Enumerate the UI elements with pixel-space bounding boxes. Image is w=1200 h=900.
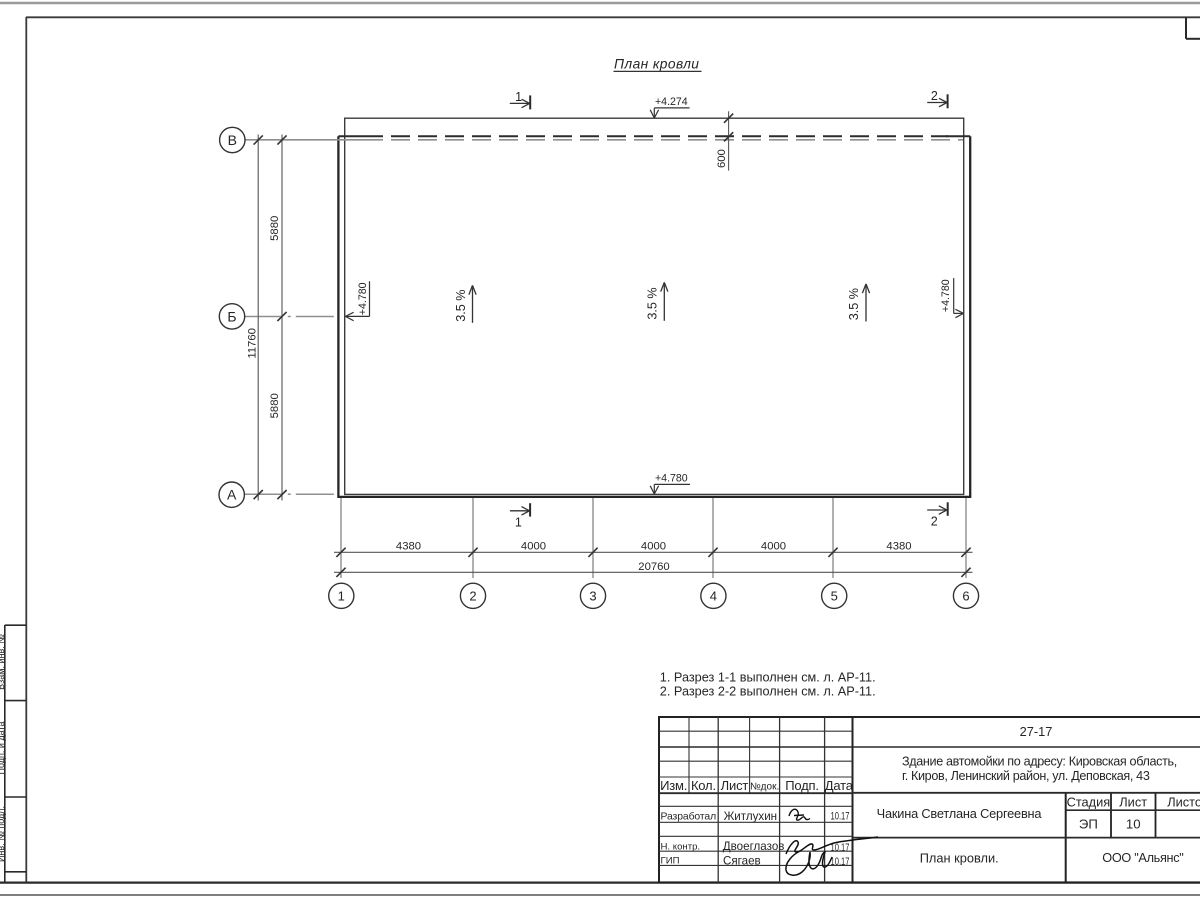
svg-text:4380: 4380 [886,541,911,553]
svg-text:Чакина Светлана Сергеевна: Чакина Светлана Сергеевна [877,806,1043,821]
svg-text:Подп. и дата: Подп. и дата [0,721,6,774]
svg-text:Кол.: Кол. [691,778,716,793]
svg-text:Лист: Лист [1119,795,1147,810]
svg-text:4: 4 [710,589,717,604]
svg-text:ЭП: ЭП [1079,816,1098,831]
svg-text:600: 600 [716,149,728,168]
svg-text:4000: 4000 [641,541,666,553]
svg-text:5880: 5880 [269,216,281,241]
svg-text:+4.780: +4.780 [357,282,369,315]
svg-text:5: 5 [831,589,838,604]
svg-text:1: 1 [515,515,522,529]
svg-text:3.5 %: 3.5 % [454,290,468,322]
svg-text:2. Разрез 2-2 выполнен см. л.: 2. Разрез 2-2 выполнен см. л. АР-11. [660,685,876,699]
svg-text:г. Киров, Ленинский район, ул.: г. Киров, Ленинский район, ул. Деповская… [902,769,1150,783]
svg-text:5880: 5880 [269,393,281,418]
svg-text:10.17: 10.17 [831,856,850,868]
svg-text:Житлухин: Житлухин [724,810,777,823]
svg-text:ГИП: ГИП [661,856,680,867]
svg-text:2: 2 [931,89,938,103]
svg-text:Сягаев: Сягаев [723,854,761,867]
svg-text:6: 6 [962,589,969,604]
svg-text:Двоеглазов: Двоеглазов [723,840,785,853]
svg-text:1: 1 [515,90,522,104]
svg-text:Н. контр.: Н. контр. [661,841,701,852]
svg-text:10.17: 10.17 [831,811,850,823]
svg-text:Здание автомойки по адресу: Ки: Здание автомойки по адресу: Кировская об… [902,754,1177,768]
svg-text:20760: 20760 [638,561,669,573]
svg-text:4000: 4000 [761,541,786,553]
svg-text:+4.780: +4.780 [655,472,688,484]
svg-text:4000: 4000 [521,541,546,553]
svg-text:3.5 %: 3.5 % [646,287,660,319]
svg-text:3: 3 [589,589,596,604]
svg-text:Листов: Листов [1167,795,1200,810]
svg-text:1: 1 [338,589,345,604]
svg-text:2: 2 [469,589,476,604]
svg-text:Б: Б [227,308,236,324]
svg-text:Инв. № подл.: Инв. № подл. [0,806,6,862]
svg-text:+4.780: +4.780 [940,279,952,312]
svg-text:В: В [228,132,237,148]
svg-text:План кровли: План кровли [614,57,699,72]
svg-text:ООО "Альянс": ООО "Альянс" [1102,851,1183,865]
svg-text:11760: 11760 [246,328,258,359]
svg-text:А: А [227,487,237,503]
svg-text:10.17: 10.17 [831,842,850,854]
svg-text:Дата: Дата [825,778,854,793]
svg-text:№док.: №док. [750,781,779,792]
svg-text:Стадия: Стадия [1067,795,1111,810]
svg-text:27-17: 27-17 [1020,724,1053,739]
svg-text:План кровли.: План кровли. [920,850,999,865]
svg-text:2: 2 [931,514,938,528]
svg-text:Подп.: Подп. [785,778,819,793]
svg-text:Разработал: Разработал [661,811,717,823]
svg-text:Изм.: Изм. [660,778,687,793]
svg-text:3.5 %: 3.5 % [847,288,861,320]
svg-text:1. Разрез 1-1 выполнен см. л.: 1. Разрез 1-1 выполнен см. л. АР-11. [660,671,876,685]
svg-text:+4.274: +4.274 [655,96,688,108]
svg-text:Лист: Лист [721,778,749,793]
svg-text:4380: 4380 [396,541,421,553]
svg-text:10: 10 [1126,816,1141,831]
svg-text:Взам. инв. №: Взам. инв. № [0,634,6,690]
